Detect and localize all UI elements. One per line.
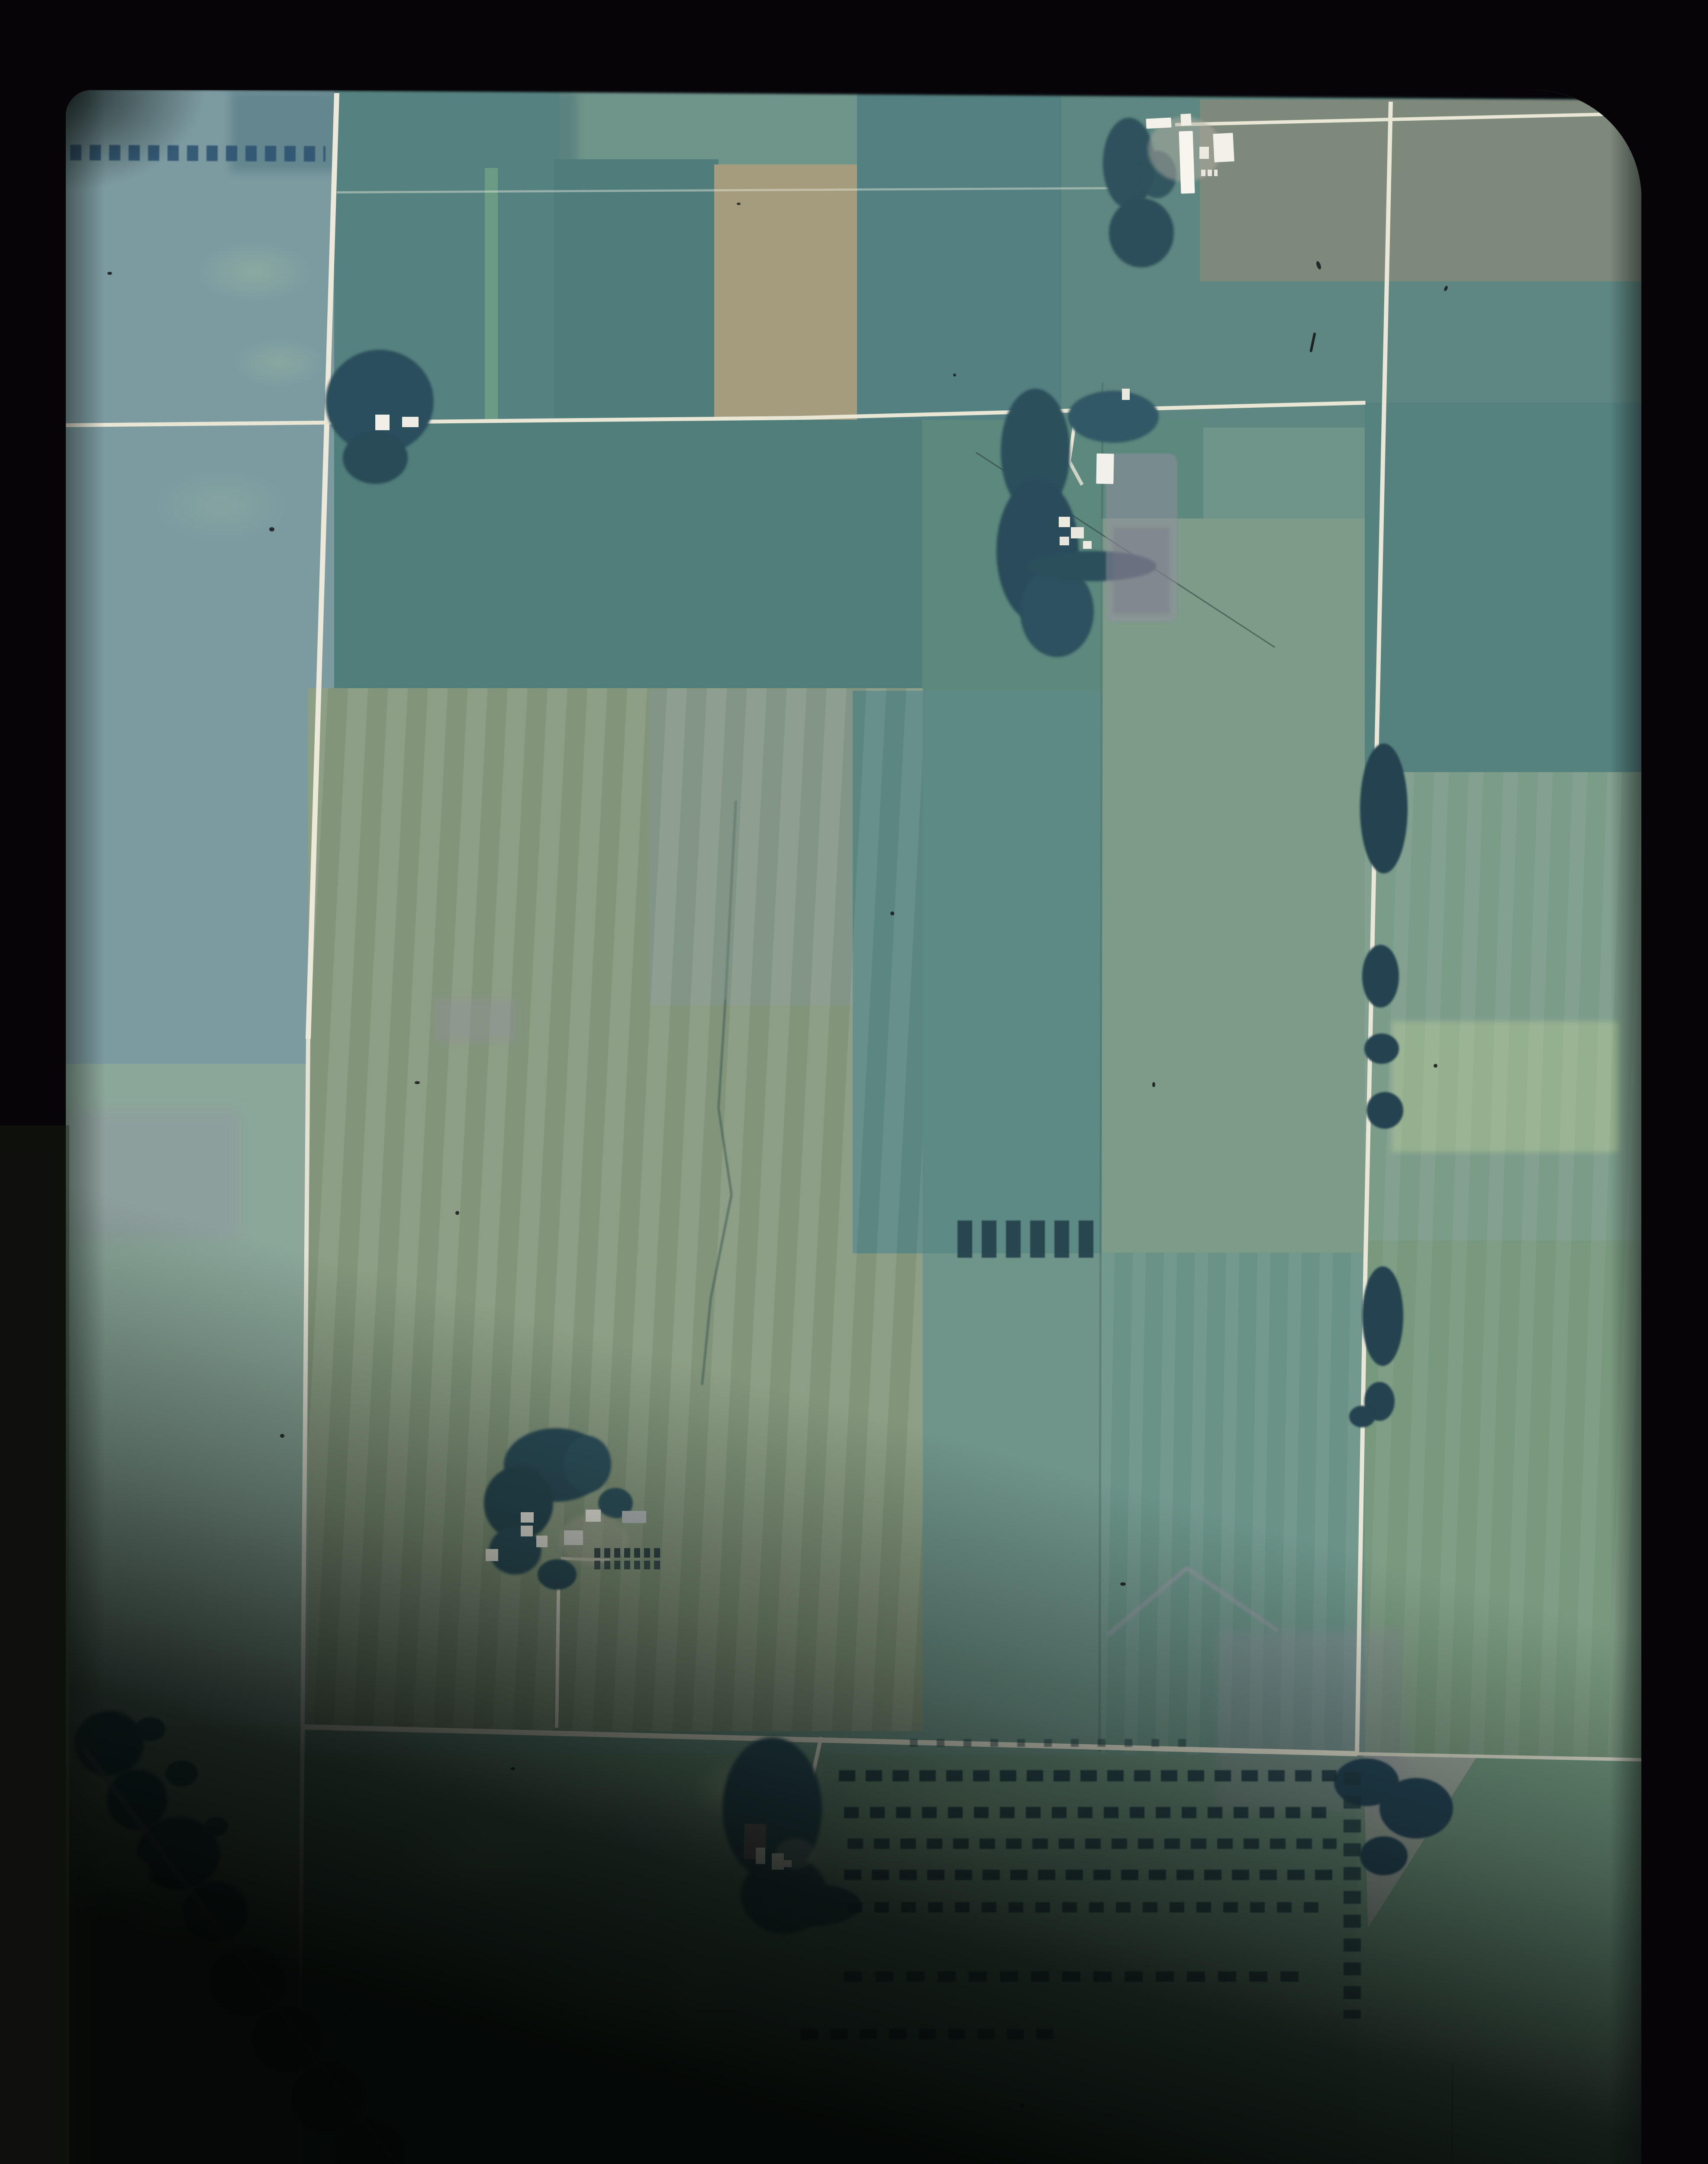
driveway-central-farm [555,1566,561,1728]
diag-treeline-7 [291,2064,364,2133]
creek-upper [724,801,737,1000]
dust-speck-16 [737,203,741,205]
dust-speck-3 [415,1081,420,1084]
field-east-bright [1392,1021,1619,1152]
bare-triangle [1363,1755,1476,1928]
marsh-dot-3 [204,1817,228,1836]
dust-speck-2 [1315,261,1322,270]
dust-speck-12 [1120,1582,1126,1586]
field-sagegray-patch [649,689,920,1005]
grove-topright-3 [1138,151,1176,198]
orchard-row-5 [848,1902,1324,1913]
grove-um-5 [1027,551,1157,581]
feedlot-um [1106,454,1177,622]
east-striations [1365,772,1641,1759]
wetland-channel-blobs [603,1756,810,2164]
dust-speck-14 [348,2006,352,2010]
building-tr-shed-a [1146,117,1171,129]
orchard-row-4 [844,1870,1337,1880]
orchard-row-7 [801,2029,1056,2039]
orchard-row-3 [848,1839,1337,1849]
roadside-clump-2 [1362,945,1399,1008]
field-sage-east-north [1102,518,1366,1253]
field-east-top-teal [1365,403,1641,772]
marsh-chevron-b [1186,1566,1279,1633]
field-mid-teal-block [334,420,923,779]
field-left-sage [66,1064,313,1730]
central-striations [308,688,923,1731]
seam-horizontal-top [337,187,1131,193]
treerow-mid-field [957,1220,1100,1258]
grove-central-4 [489,1527,541,1575]
orchard-right-treeline [1344,1772,1361,2019]
junction-clump-1 [1334,1758,1399,1806]
grove-um-1 [1001,389,1070,514]
grove-um-2 [996,480,1079,622]
field-topleft-haze [66,90,343,1081]
building-c-shed-3 [536,1536,548,1547]
roadside-clump-6 [1364,1382,1395,1421]
seam-vertical-br [1449,2063,1453,2164]
farmyard-topright [1148,117,1221,182]
building-b-shed-2 [783,1860,792,1867]
building-um-roadside [1122,389,1130,400]
building-b-shed-1 [772,1853,784,1870]
farmyard-central [559,1514,628,1566]
building-tr-barn [1179,131,1195,193]
junction-clump-3 [1360,1836,1408,1875]
marsh-dot-1 [135,1717,165,1741]
dust-speck-6 [890,911,894,915]
dust-speck-7 [1152,1082,1155,1087]
field-east-lower-sage [1365,1240,1641,1760]
field-tealblock-south [1102,1253,1366,1756]
grove-central-5 [538,1559,577,1590]
grove-central-3 [564,1436,611,1492]
vignette-left-edge [66,90,1641,2164]
seam-vertical-mid [1099,383,1104,1752]
roadside-clump-5 [1362,1266,1403,1366]
road-ew-main [303,1724,1357,1756]
purple-smudge-west [70,1109,239,1239]
field-green-strip [485,168,498,426]
driveway-um-farm-b [1067,460,1083,486]
grove-um-4 [1068,391,1159,443]
dust-speck-15 [1020,2103,1024,2107]
grove-bottom-farm-3 [757,1883,861,1926]
orchard-row-2 [844,1807,1337,1818]
dust-speck-10 [1434,1064,1437,1068]
driveway-um-farm-a [1067,422,1076,461]
field-bottomright [1357,1757,1641,2164]
grove-topright-2 [1109,198,1174,267]
meadow-light-1 [94,1854,150,1893]
field-tealblock-north [853,691,1103,1253]
dust-speck-17 [953,374,956,377]
diag-treeline-2 [107,1769,168,1830]
marsh-chevron-a [1106,1566,1188,1637]
field-bottom-main [303,1754,894,2164]
road-ew-main-east [1357,1752,1641,1761]
field-top-teal-c [857,90,1134,423]
feedlot-row-2 [594,1561,664,1569]
building-b-barn [756,1848,765,1864]
haze-mottle [83,129,334,778]
field-tan-strip [714,164,858,426]
road-ew-upper-west [66,416,801,427]
grove-central-1 [504,1428,608,1502]
grove-left-farm-1 [325,350,434,454]
diag-creek [81,1746,453,2164]
dust-speck-4 [455,1211,459,1215]
top-black-slant [66,90,1641,100]
building-um-shed-1 [1059,517,1070,527]
roadside-clump-7 [1349,1406,1375,1427]
dust-speck-5 [107,272,112,275]
roadside-clump-1 [1360,744,1408,873]
creek-seg-2 [717,1108,733,1195]
junction-clump-2 [1379,1778,1453,1839]
orchard-row-1 [839,1770,1337,1781]
lane-central-farm [561,1557,610,1562]
diag-treeline-6 [252,2007,321,2072]
diag-treeline-4 [183,1882,248,1942]
field-wetland-west [66,1726,306,2164]
field-central-sage [308,688,923,1731]
road-ew-topright [1175,112,1640,126]
dust-speck-11 [280,1434,284,1438]
building-l-shed-1 [375,415,390,430]
treeline-topleft-dots [70,145,325,161]
vehicle-row-tr [1201,170,1218,176]
building-b-house [744,1823,767,1860]
diag-treeline-5 [209,1947,287,2016]
dust-speck-1 [269,527,274,531]
building-c-hut [486,1549,498,1561]
dust-speck-13 [1444,285,1449,292]
road-ns-right-lower [1355,1255,1368,1755]
creek-seg-1 [717,1000,727,1108]
field-topright-brown [1200,100,1641,281]
field-top-teal-b [554,159,719,426]
feedlot-row-1 [594,1548,664,1558]
vignette-bottomleft [66,90,1641,2164]
vignette-corner-tl [66,90,1641,2164]
driveway-bottom-farm-a [803,1736,823,1810]
building-c-shed-4 [564,1530,583,1545]
field-topright-green [1061,90,1641,428]
vignette-corner-br [66,90,1641,2164]
grove-um-3 [1020,566,1094,657]
field-east-sage [1365,772,1641,1240]
road-ns-left-lower [296,1039,310,2164]
dust-squiggle [1309,332,1316,352]
roadside-clump-3 [1364,1034,1399,1064]
grove-topright-1 [1103,118,1155,209]
creek-seg-4 [701,1298,712,1385]
building-um-shed-3 [1060,537,1069,545]
building-tr-shed-b [1180,113,1191,126]
slide-scan [0,0,1708,2164]
building-um-shed-2 [1071,527,1084,538]
building-c-shed-1 [521,1512,534,1523]
orchard-row-sparse [910,1739,1187,1747]
marsh-dot-4 [111,1856,139,1880]
building-c-barn [622,1511,646,1523]
aerial-photo [66,90,1641,2164]
roadside-clump-4 [1366,1092,1403,1129]
vignette-right-edge [66,90,1641,2164]
building-tr-shed-d [1199,147,1209,159]
purple-dot [434,999,516,1042]
field-um-green [922,420,1203,723]
field-top-teal-a [334,90,559,426]
building-um-shed-4 [1083,541,1092,549]
driveway-bottom-farm-b [782,1808,807,1835]
orchard-row-6 [844,1971,1303,1982]
border-tint-left [0,1125,69,2164]
tealblock-striations [1102,1253,1366,1755]
field-topleft-haze-wedge [230,90,577,172]
diag-treeline-3 [137,1817,219,1890]
building-um-barn [1096,454,1114,484]
grove-left-farm-2 [343,432,408,484]
road-ew-upper-east [801,401,1366,420]
creek-seg-3 [709,1194,733,1298]
feedlot-um-inner [1113,527,1170,614]
building-c-house [586,1510,601,1522]
diag-treeline-1 [74,1711,144,1776]
scratch-line [976,452,1275,648]
grove-bottom-farm-1 [722,1737,822,1880]
grove-bottom-farm-2 [741,1856,828,1934]
road-ns-right-upper [1363,102,1393,1255]
farmyard-bottom [776,1839,815,1869]
road-ns-left-upper [306,93,339,1039]
building-tr-barn-c [1213,133,1234,162]
bottom-mottle [303,1754,1369,2164]
grove-central-2 [484,1466,553,1540]
vignette-bottom-edge [66,90,1641,2164]
grove-central-6 [598,1488,633,1518]
marsh-dot-2 [165,1761,198,1787]
purple-marsh-patch [1217,1631,1403,1813]
meadow-light-2 [131,1912,178,1947]
field-orchard [823,1755,1360,2164]
building-l-shed-2 [402,417,419,427]
diag-treeline-8 [334,2120,403,2164]
driveway-left-farm [331,407,370,413]
building-c-shed-2 [521,1526,533,1536]
dust-speck-8 [511,1767,515,1770]
